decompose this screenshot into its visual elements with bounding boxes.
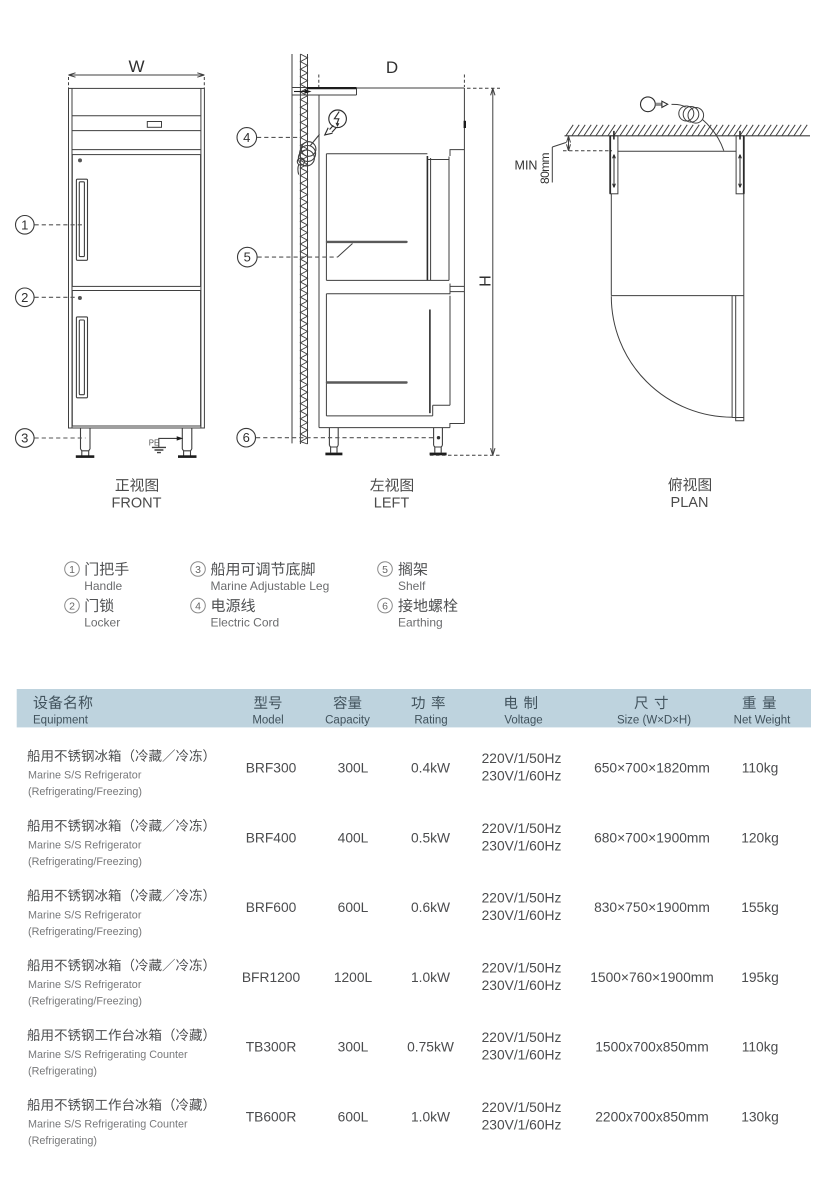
svg-text:0.6kW: 0.6kW [411, 900, 450, 915]
svg-text:Size (W×D×H): Size (W×D×H) [617, 715, 691, 727]
svg-text:(Refrigerating/Freezing): (Refrigerating/Freezing) [28, 926, 142, 938]
svg-text:5: 5 [244, 250, 251, 265]
svg-text:195kg: 195kg [741, 970, 779, 985]
svg-text:220V/1/50Hz: 220V/1/50Hz [482, 1030, 562, 1045]
svg-text:600L: 600L [338, 1110, 369, 1125]
svg-text:0.4kW: 0.4kW [411, 761, 450, 776]
svg-text:PLAN: PLAN [671, 495, 709, 511]
svg-text:BFR1200: BFR1200 [242, 970, 301, 985]
svg-text:(Refrigerating/Freezing): (Refrigerating/Freezing) [28, 996, 142, 1008]
svg-text:Electric Cord: Electric Cord [211, 615, 280, 629]
svg-text:650×700×1820mm: 650×700×1820mm [594, 761, 710, 776]
svg-text:220V/1/50Hz: 220V/1/50Hz [482, 960, 562, 975]
svg-text:(Refrigerating/Freezing): (Refrigerating/Freezing) [28, 786, 142, 798]
svg-text:Rating: Rating [414, 715, 447, 727]
svg-text:0.5kW: 0.5kW [411, 830, 450, 845]
svg-text:230V/1/60Hz: 230V/1/60Hz [482, 1118, 562, 1133]
svg-text:(Refrigerating/Freezing): (Refrigerating/Freezing) [28, 856, 142, 868]
svg-text:1500x700x850mm: 1500x700x850mm [595, 1040, 709, 1055]
svg-text:Model: Model [252, 715, 283, 727]
svg-text:1: 1 [69, 564, 75, 576]
svg-text:1500×760×1900mm: 1500×760×1900mm [590, 970, 714, 985]
svg-text:230V/1/60Hz: 230V/1/60Hz [482, 838, 562, 853]
svg-text:Equipment: Equipment [33, 715, 89, 727]
svg-text:Marine Adjustable Leg: Marine Adjustable Leg [211, 579, 330, 593]
svg-text:BRF300: BRF300 [246, 761, 297, 776]
svg-text:3: 3 [195, 564, 201, 576]
svg-text:H: H [478, 275, 495, 287]
svg-text:4: 4 [195, 600, 201, 612]
svg-text:Marine S/S Refrigerator: Marine S/S Refrigerator [28, 770, 142, 782]
svg-text:2200x700x850mm: 2200x700x850mm [595, 1110, 709, 1125]
svg-text:FRONT: FRONT [112, 496, 162, 512]
svg-text:TB300R: TB300R [246, 1040, 297, 1055]
svg-text:Capacity: Capacity [325, 715, 370, 727]
svg-text:5: 5 [382, 564, 388, 576]
svg-text:680×700×1900mm: 680×700×1900mm [594, 830, 710, 845]
svg-text:4: 4 [243, 130, 250, 145]
svg-text:Net Weight: Net Weight [734, 715, 791, 727]
svg-text:1: 1 [21, 217, 28, 232]
svg-text:110kg: 110kg [742, 761, 779, 776]
svg-text:1.0kW: 1.0kW [411, 1110, 450, 1125]
svg-text:W: W [128, 57, 144, 76]
svg-text:Shelf: Shelf [398, 579, 426, 593]
svg-text:155kg: 155kg [741, 900, 779, 915]
svg-text:300L: 300L [338, 761, 369, 776]
svg-text:300L: 300L [338, 1040, 369, 1055]
svg-text:110kg: 110kg [742, 1040, 779, 1055]
svg-text:220V/1/50Hz: 220V/1/50Hz [482, 751, 562, 766]
svg-text:PE: PE [149, 438, 159, 447]
svg-text:Locker: Locker [84, 615, 120, 629]
svg-text:Earthing: Earthing [398, 615, 443, 629]
svg-text:Marine S/S Refrigerator: Marine S/S Refrigerator [28, 909, 142, 921]
svg-text:220V/1/50Hz: 220V/1/50Hz [482, 821, 562, 836]
svg-text:600L: 600L [338, 900, 369, 915]
svg-text:1200L: 1200L [334, 970, 373, 985]
svg-text:MIN: MIN [515, 159, 538, 173]
svg-text:6: 6 [382, 600, 388, 612]
svg-text:Marine S/S Refrigerator: Marine S/S Refrigerator [28, 840, 142, 852]
svg-text:Handle: Handle [84, 579, 122, 593]
svg-text:D: D [386, 58, 398, 77]
svg-text:830×750×1900mm: 830×750×1900mm [594, 900, 710, 915]
svg-text:TB600R: TB600R [246, 1110, 297, 1125]
svg-text:1.0kW: 1.0kW [411, 970, 450, 985]
svg-text:Marine S/S Refrigerating Count: Marine S/S Refrigerating Counter [28, 1049, 188, 1061]
svg-text:(Refrigerating): (Refrigerating) [28, 1135, 97, 1147]
svg-text:3: 3 [21, 431, 28, 446]
svg-text:Marine S/S Refrigerating Count: Marine S/S Refrigerating Counter [28, 1119, 188, 1131]
svg-text:0.75kW: 0.75kW [407, 1040, 454, 1055]
svg-text:230V/1/60Hz: 230V/1/60Hz [482, 908, 562, 923]
svg-text:220V/1/50Hz: 220V/1/50Hz [482, 891, 562, 906]
svg-text:LEFT: LEFT [374, 496, 410, 512]
svg-text:220V/1/50Hz: 220V/1/50Hz [482, 1100, 562, 1115]
svg-text:6: 6 [243, 430, 250, 445]
svg-text:2: 2 [69, 600, 75, 612]
svg-text:230V/1/60Hz: 230V/1/60Hz [482, 978, 562, 993]
svg-text:BRF400: BRF400 [246, 830, 297, 845]
svg-text:Voltage: Voltage [504, 715, 542, 727]
svg-text:(Refrigerating): (Refrigerating) [28, 1065, 97, 1077]
svg-text:120kg: 120kg [741, 830, 779, 845]
svg-text:130kg: 130kg [741, 1110, 779, 1125]
svg-text:80mm: 80mm [538, 152, 552, 184]
svg-text:2: 2 [21, 290, 28, 305]
svg-text:230V/1/60Hz: 230V/1/60Hz [482, 1048, 562, 1063]
svg-text:230V/1/60Hz: 230V/1/60Hz [482, 769, 562, 784]
svg-text:Marine S/S Refrigerator: Marine S/S Refrigerator [28, 979, 142, 991]
svg-text:BRF600: BRF600 [246, 900, 297, 915]
svg-text:400L: 400L [338, 830, 369, 845]
